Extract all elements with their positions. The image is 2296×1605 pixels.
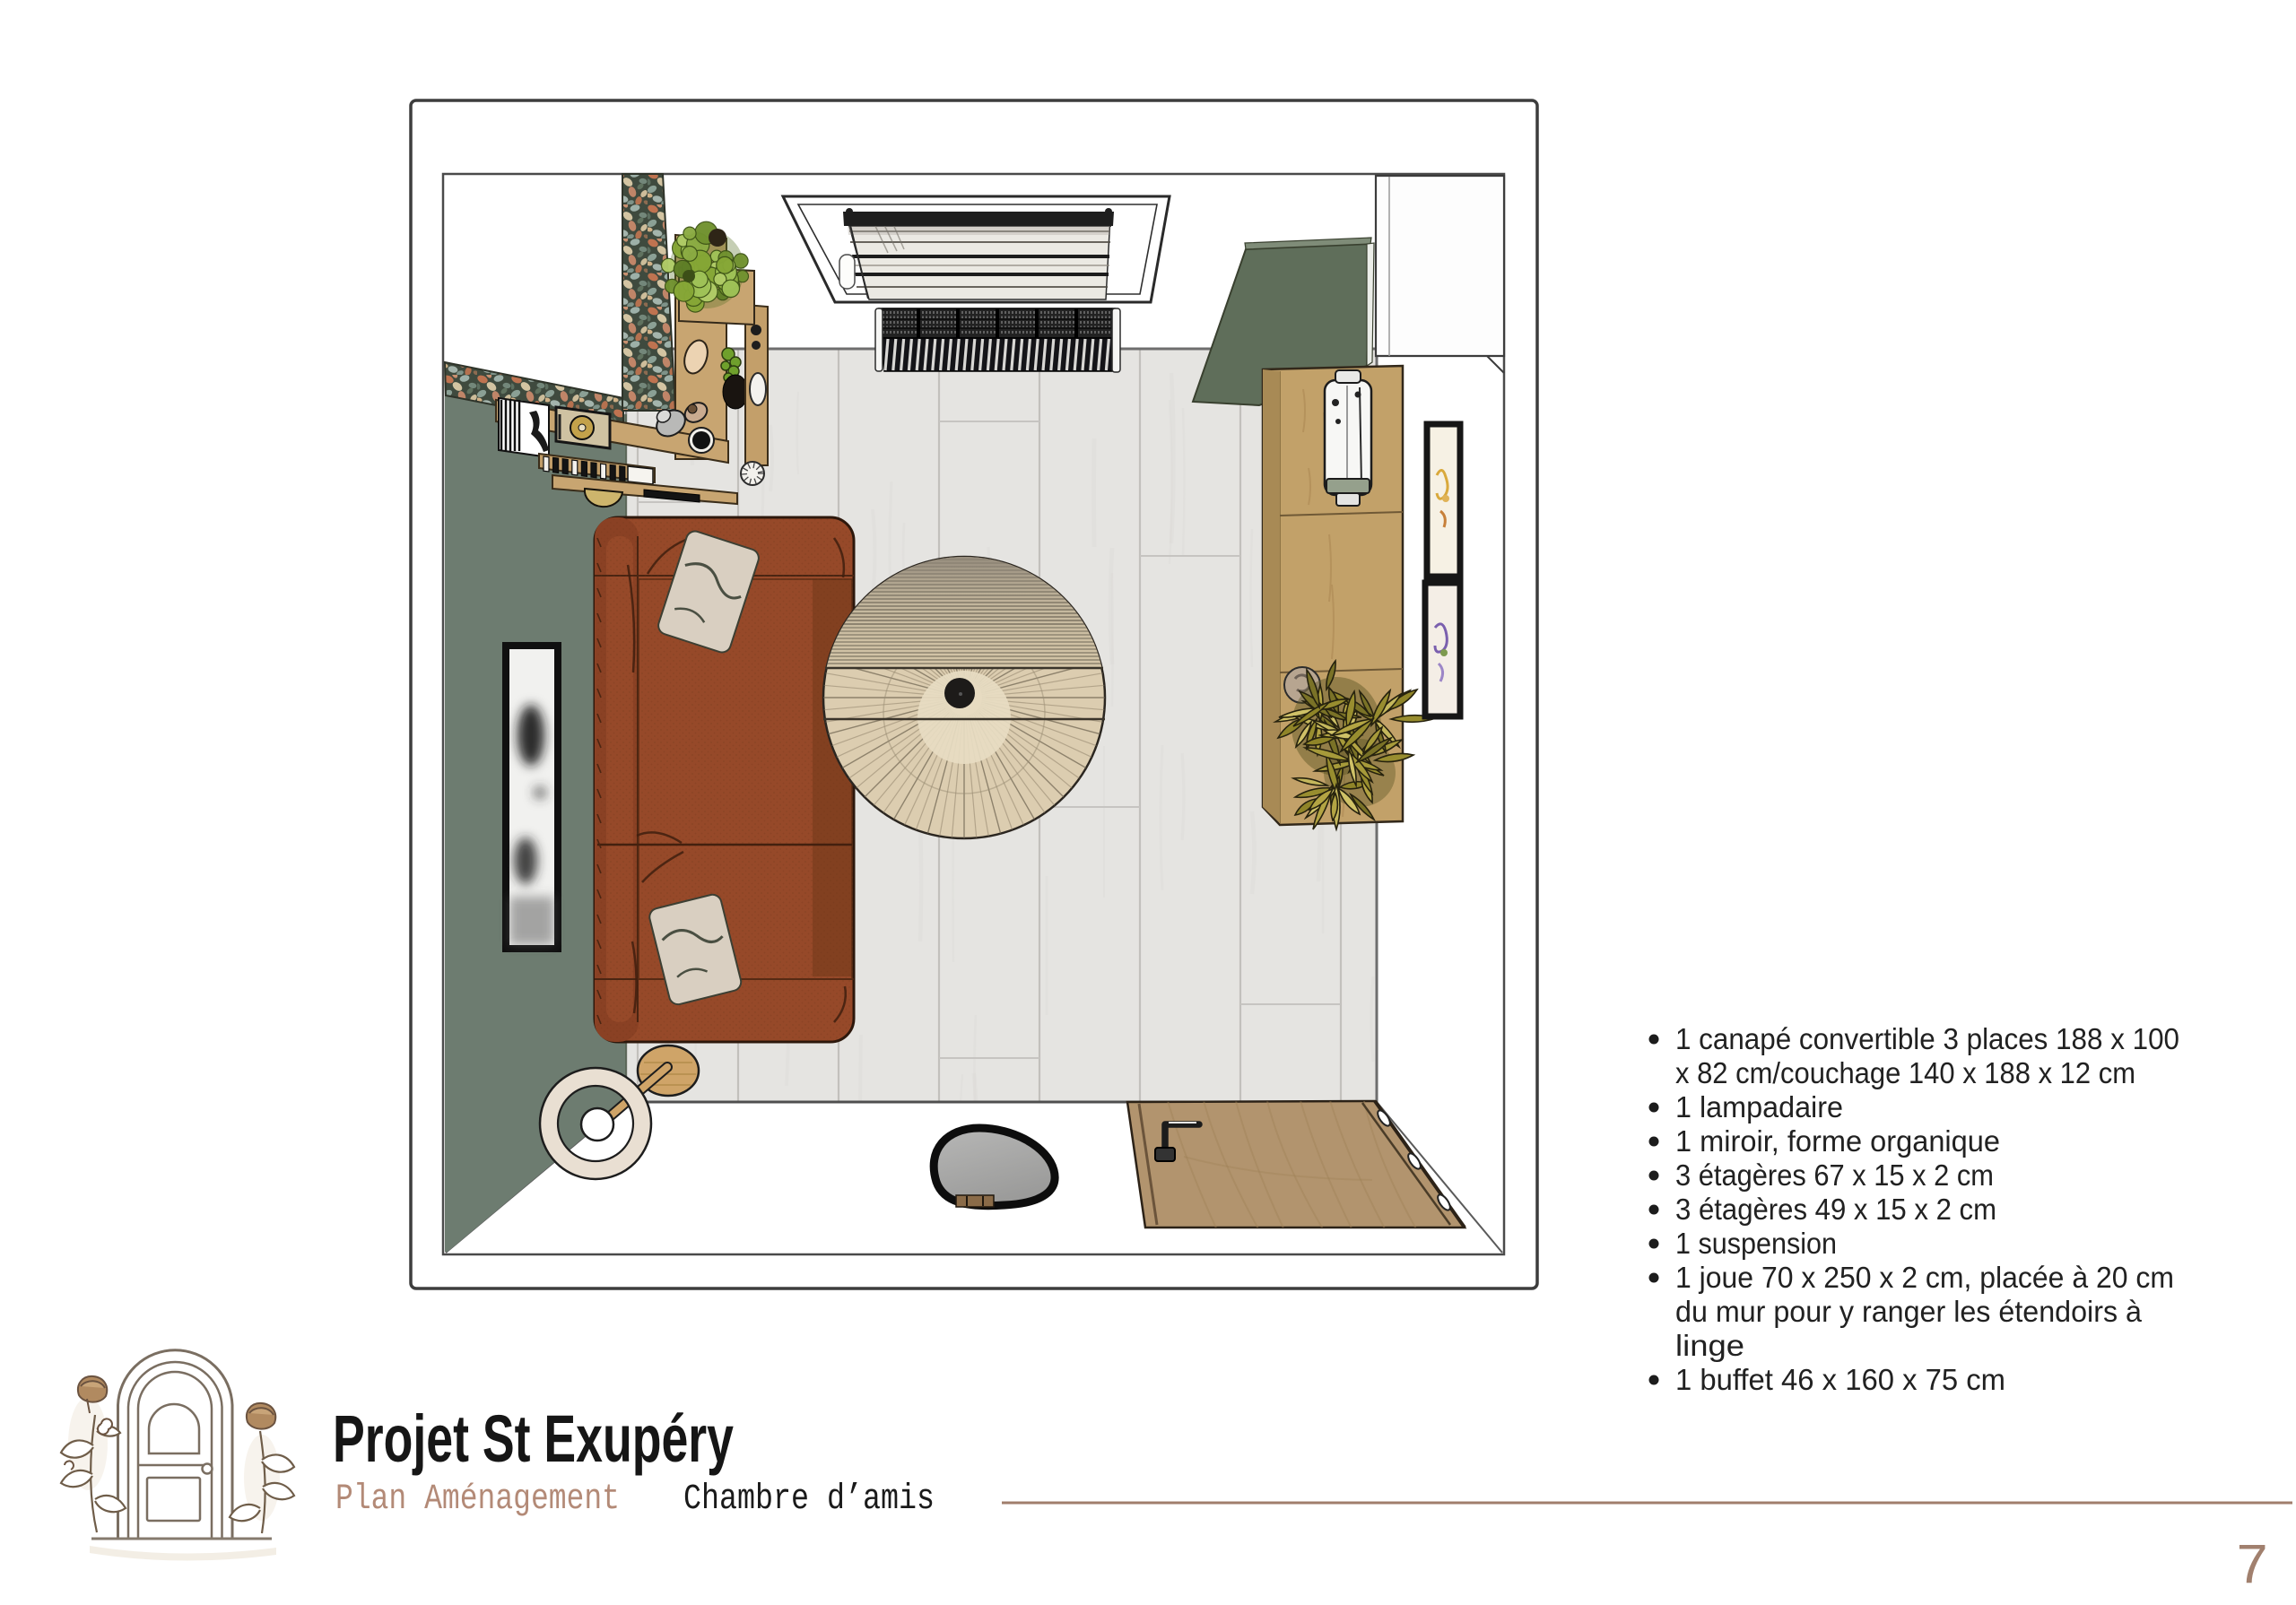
svg-text:7: 7 xyxy=(2235,1536,2269,1601)
svg-text:1 joue 70 x 250 x 2 cm, placée: 1 joue 70 x 250 x 2 cm, placée à 20 cm xyxy=(1675,1261,2174,1294)
svg-text:Plan Aménagement: Plan Aménagement xyxy=(335,1479,620,1520)
svg-text:1 suspension: 1 suspension xyxy=(1675,1227,1837,1260)
svg-text:1 buffet 46 x 160 x 75 cm: 1 buffet 46 x 160 x 75 cm xyxy=(1675,1363,2005,1396)
svg-text:Projet St Exupéry: Projet St Exupéry xyxy=(333,1401,734,1476)
svg-text:du mur pour y ranger les étend: du mur pour y ranger les étendoirs à xyxy=(1675,1295,2143,1328)
svg-text:3 étagères 49 x 15 x 2 cm: 3 étagères 49 x 15 x 2 cm xyxy=(1675,1193,1996,1226)
svg-text:x 82 cm/couchage 140 x 188 x 1: x 82 cm/couchage 140 x 188 x 12 cm xyxy=(1675,1056,2135,1089)
svg-text:3 étagères 67 x 15 x 2 cm: 3 étagères 67 x 15 x 2 cm xyxy=(1675,1158,1994,1192)
svg-text:linge: linge xyxy=(1675,1329,1744,1362)
svg-text:1 miroir, forme organique: 1 miroir, forme organique xyxy=(1675,1124,2000,1158)
svg-text:1 lampadaire: 1 lampadaire xyxy=(1675,1090,1843,1123)
svg-text:1 canapé convertible 3 places: 1 canapé convertible 3 places 188 x 100 xyxy=(1675,1022,2179,1055)
svg-text:Chambre d’amis: Chambre d’amis xyxy=(683,1479,935,1520)
